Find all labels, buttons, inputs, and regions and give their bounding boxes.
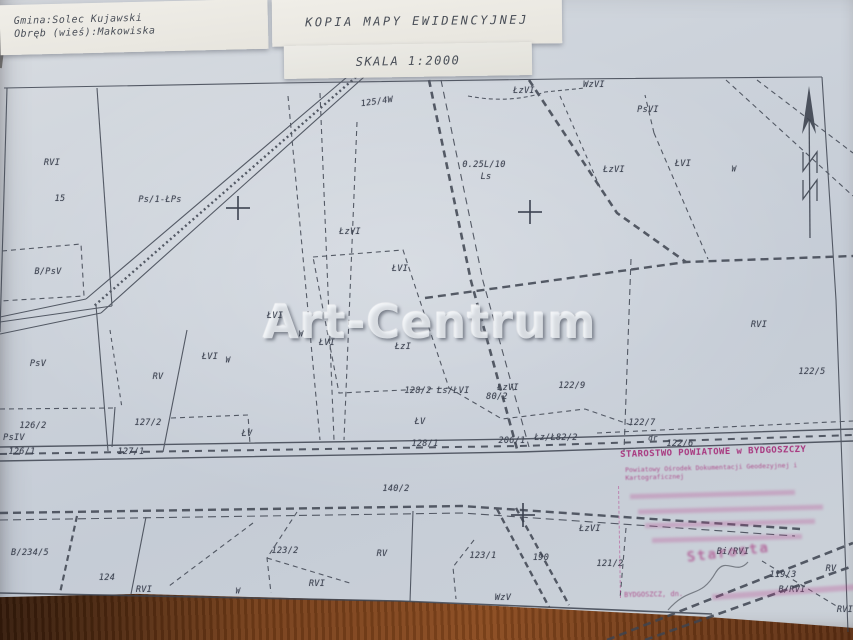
parcel-label: 125/4W xyxy=(360,95,394,109)
parcel-label: B/PsV xyxy=(34,267,61,277)
header-scale-strip: SKALA 1:2000 xyxy=(284,42,532,79)
parcel-label: 122/5 xyxy=(798,367,825,377)
parcel-label: 206/1 xyxy=(498,436,525,446)
parcel-label: 126/1 xyxy=(8,447,35,457)
parcel-label: 123/2 xyxy=(271,546,298,556)
grid-cross-mark xyxy=(511,503,535,527)
parcel-label: RVI xyxy=(309,579,325,589)
parcel-label: 122/6 xyxy=(666,439,693,449)
parcel-label: RV xyxy=(153,372,164,382)
parcel-label: 124 xyxy=(99,573,115,583)
parcel-label: ŁVI xyxy=(675,159,691,169)
parcel-label: ŁzVI xyxy=(339,227,361,237)
map-title: KOPIA MAPY EWIDENCYJNEJ xyxy=(305,13,529,30)
parcel-label: 127/1 xyxy=(117,447,144,457)
parcel-label: Bi/RVI xyxy=(717,547,750,557)
parcel-label: PsVI xyxy=(637,105,659,115)
parcel-label: ŁV xyxy=(242,429,253,439)
parcel-label: Ps/1-ŁPs xyxy=(138,195,181,205)
parcel-label: RVI xyxy=(837,605,853,615)
parcel-label: RVI xyxy=(136,585,152,595)
parcel-label: RVI xyxy=(751,320,767,330)
parcel-label: RVI xyxy=(44,158,60,168)
parcel-label: ŁzVI xyxy=(603,165,625,175)
parcel-label: W xyxy=(226,356,231,365)
parcel-label: ŁzVI xyxy=(513,86,535,96)
parcel-label: WzV xyxy=(495,593,511,603)
parcel-label: 122/7 xyxy=(628,418,655,428)
parcel-label: 121/2 xyxy=(596,559,623,569)
header-location-strip: Gmina:Solec Kujawski Obręb (wieś):Makowi… xyxy=(0,0,269,55)
grid-cross-mark xyxy=(226,196,250,220)
parcel-label: 15 xyxy=(55,194,66,204)
parcel-label: 127/2 xyxy=(134,418,161,428)
parcel-label: 122/9 xyxy=(558,381,585,391)
map-scale: SKALA 1:2000 xyxy=(356,53,461,69)
parcel-label: PsV xyxy=(30,359,46,369)
parcel-label: dr xyxy=(648,434,658,443)
parcel-label: 119/3 xyxy=(769,570,796,580)
parcel-label: ŁVI xyxy=(267,311,283,321)
parcel-label: ŁVI xyxy=(392,264,408,274)
grid-cross-mark xyxy=(518,200,542,224)
parcel-label: B/234/5 xyxy=(11,548,49,558)
parcel-label: WzVI xyxy=(583,80,605,90)
parcel-label: 128/2 Ls/ŁVI xyxy=(404,386,469,396)
parcel-label: ŁVI xyxy=(202,352,218,362)
header-title-strip: KOPIA MAPY EWIDENCYJNEJ xyxy=(272,0,563,47)
map-photo: Art-Centrum RVI15Ps/1-ŁPsB/PsVPsVRVŁVIW1… xyxy=(0,0,853,640)
parcel-label: ŁzI xyxy=(395,342,411,352)
parcel-label: 0.25L/10 xyxy=(462,160,505,170)
parcel-label: 128/1 xyxy=(411,439,438,449)
parcel-label: B/RVI xyxy=(778,585,805,595)
parcel-label: PsIV xyxy=(3,433,25,443)
parcel-label: Łz/Ł82/2 xyxy=(534,433,577,443)
parcel-label: RV xyxy=(826,564,837,574)
parcel-label: 140/2 xyxy=(382,484,409,494)
parcel-label: ŁzVI xyxy=(579,524,601,534)
parcel-label: Ls xyxy=(481,172,492,182)
parcel-label: ŁV xyxy=(415,417,426,427)
parcel-label: 123/1 xyxy=(469,551,496,561)
parcel-label: W xyxy=(236,587,241,596)
parcel-labels-layer: RVI15Ps/1-ŁPsB/PsVPsVRVŁVIW126/2PsIV126/… xyxy=(0,0,853,640)
parcel-label: W xyxy=(732,165,737,174)
parcel-label: 80/2 xyxy=(486,392,508,402)
parcel-label: 126/2 xyxy=(19,421,46,431)
parcel-label: 190 xyxy=(533,553,549,563)
parcel-label: W xyxy=(299,330,304,339)
parcel-label: RV xyxy=(377,549,388,559)
parcel-label: ŁVI xyxy=(319,338,335,348)
